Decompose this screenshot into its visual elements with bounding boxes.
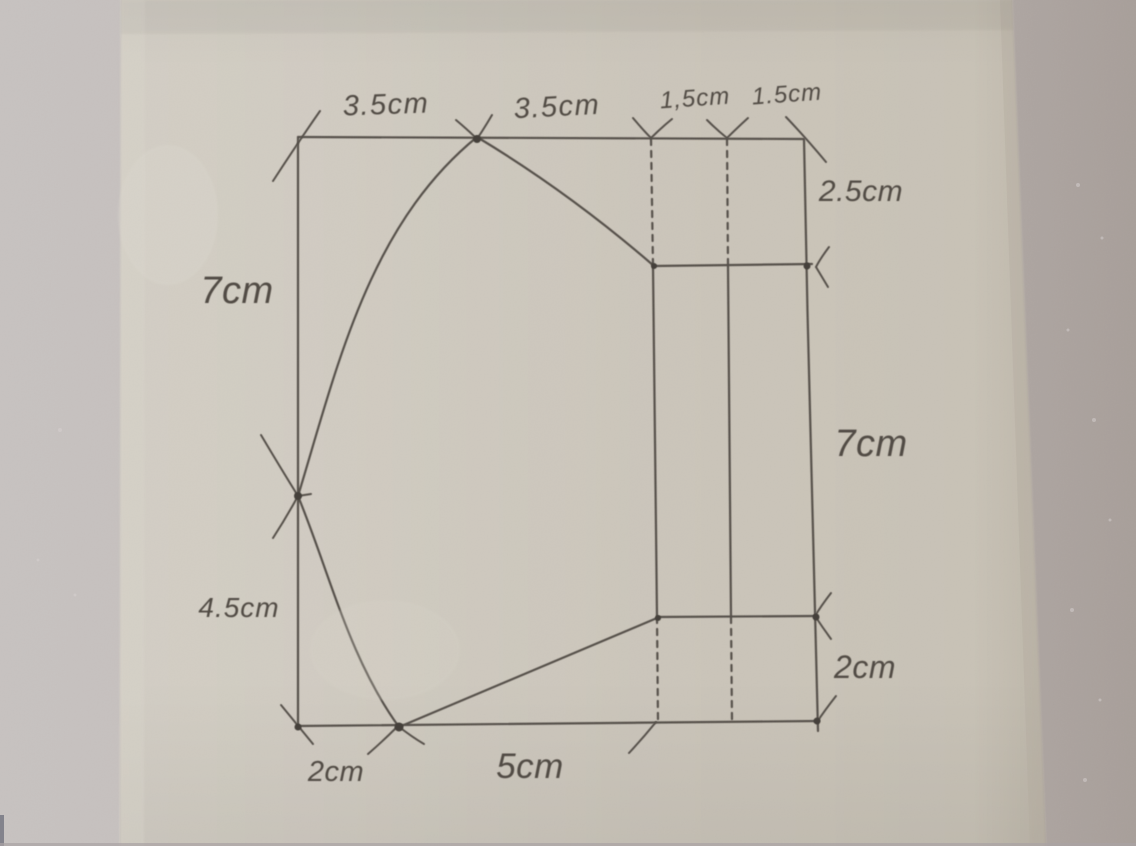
svg-text:4.5cm: 4.5cm (198, 592, 279, 623)
svg-text:1,5cm: 1,5cm (659, 83, 731, 115)
svg-text:3.5cm: 3.5cm (513, 89, 601, 125)
svg-text:7cm: 7cm (834, 423, 907, 465)
svg-text:2cm: 2cm (833, 649, 896, 685)
svg-text:3.5cm: 3.5cm (342, 88, 430, 123)
svg-text:5cm: 5cm (496, 747, 564, 786)
svg-text:2cm: 2cm (307, 756, 364, 788)
svg-text:2.5cm: 2.5cm (818, 175, 903, 208)
svg-text:7cm: 7cm (200, 270, 273, 312)
svg-text:1.5cm: 1.5cm (751, 79, 823, 111)
